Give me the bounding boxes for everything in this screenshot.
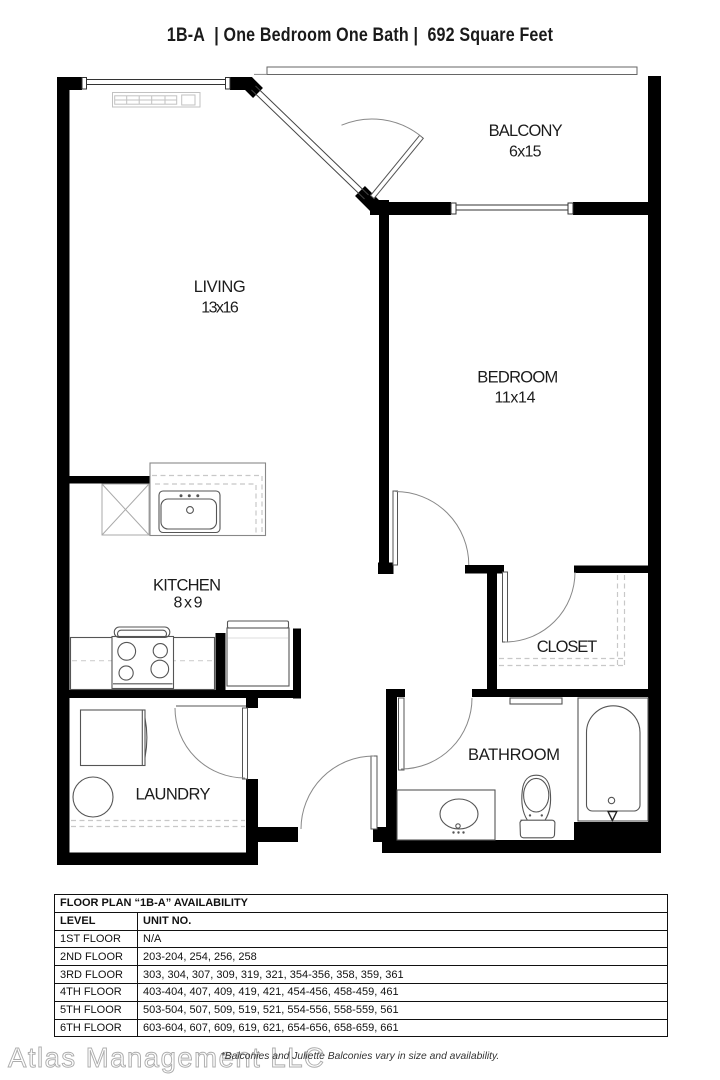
svg-text:11x14: 11x14 xyxy=(495,390,536,407)
svg-text:8x9: 8x9 xyxy=(174,595,203,612)
svg-text:BATHROOM: BATHROOM xyxy=(468,746,560,764)
svg-text:13x16: 13x16 xyxy=(201,300,239,317)
svg-text:KITCHEN: KITCHEN xyxy=(153,577,221,595)
svg-text:CLOSET: CLOSET xyxy=(537,638,598,656)
svg-text:BALCONY: BALCONY xyxy=(489,122,563,140)
svg-text:BEDROOM: BEDROOM xyxy=(477,369,558,387)
svg-text:6x15: 6x15 xyxy=(509,144,542,161)
svg-text:LAUNDRY: LAUNDRY xyxy=(136,786,211,804)
svg-text:LIVING: LIVING xyxy=(194,278,246,296)
